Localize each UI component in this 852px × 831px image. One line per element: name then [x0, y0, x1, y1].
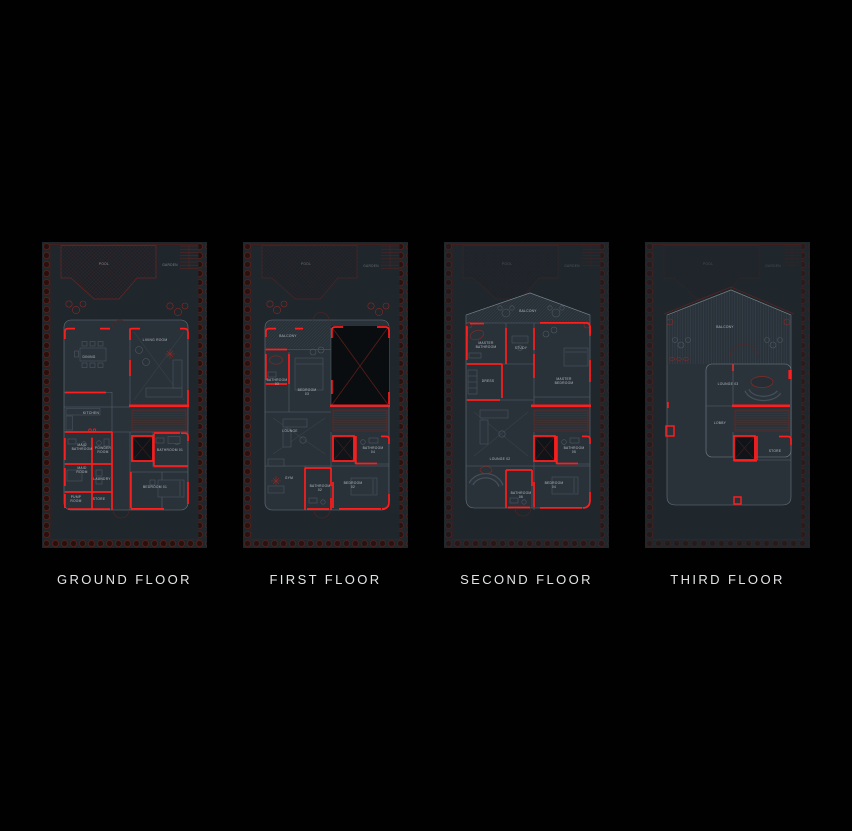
- room-label: GYM: [285, 476, 293, 480]
- stairs: [132, 410, 186, 431]
- floor-plan-ground: POOLGARDENDININGLIVING ROOMKITCHENMAIDBA…: [42, 242, 207, 548]
- room-label: BALCONY: [716, 325, 734, 329]
- room-label: GARDEN: [363, 264, 379, 268]
- room-label: LOBBY: [714, 421, 727, 425]
- room-label: GARDEN: [162, 263, 178, 267]
- stairs: [534, 410, 588, 431]
- room-label: DINING: [82, 355, 95, 359]
- room-label: MAIDROOM: [76, 466, 87, 474]
- room-label: STUDY: [515, 346, 528, 350]
- room-label: KITCHEN: [83, 411, 100, 415]
- room-label: GARDEN: [564, 264, 580, 268]
- hedge-left: [43, 242, 51, 548]
- ground-floor-drawing: POOLGARDENDININGLIVING ROOMKITCHENMAIDBA…: [42, 242, 207, 548]
- room-label: LOUNGE 02: [490, 457, 511, 461]
- room-label: GARDEN: [765, 264, 781, 268]
- floor-plan-first: POOLGARDENBALCONYBATHROOM03BEDROOM03LOUN…: [243, 242, 408, 548]
- room-label: POOL: [99, 262, 109, 266]
- second-floor-drawing: POOLGARDENBALCONYMASTERBATHROOMSTUDYMAST…: [444, 242, 609, 548]
- caption-third-floor: THIRD FLOOR: [645, 572, 810, 587]
- room-label: POOL: [703, 262, 713, 266]
- floor-plan-second: POOLGARDENBALCONYMASTERBATHROOMSTUDYMAST…: [444, 242, 609, 548]
- elevator: [333, 436, 354, 461]
- room-label: PUMPROOM: [70, 495, 81, 503]
- room-label: LIVING ROOM: [143, 338, 168, 342]
- stairs: [333, 410, 387, 431]
- room-label: MASTERBEDROOM: [555, 377, 574, 385]
- elevator: [132, 436, 153, 461]
- room-label: LOUNGE 03: [718, 382, 739, 386]
- room-label: BALCONY: [279, 334, 297, 338]
- room-label: BATHROOM 01: [157, 448, 183, 452]
- room-label: LAUNDRY: [93, 477, 111, 481]
- elevator: [534, 436, 555, 461]
- room-label: BEDROOM 01: [143, 485, 167, 489]
- room-label: LOUNGE: [282, 429, 298, 433]
- double-height-void: [330, 326, 390, 406]
- floor-plan-third: POOLGARDENBALCONYLOUNGE 03LOBBYSTORE THI…: [645, 242, 810, 548]
- third-floor-drawing: POOLGARDENBALCONYLOUNGE 03LOBBYSTORE: [645, 242, 810, 548]
- caption-first-floor: FIRST FLOOR: [243, 572, 408, 587]
- hedge-right: [199, 242, 207, 548]
- room-label: DRESS: [482, 379, 495, 383]
- room-label: STORE: [769, 449, 782, 453]
- room-label: BALCONY: [519, 309, 537, 313]
- stairs: [735, 410, 789, 431]
- room-label: MASTERBATHROOM: [476, 341, 497, 349]
- room-label: STORE: [93, 497, 106, 501]
- hedge-bottom: [50, 540, 199, 549]
- first-floor-drawing: POOLGARDENBALCONYBATHROOM03BEDROOM03LOUN…: [243, 242, 408, 548]
- caption-second-floor: SECOND FLOOR: [444, 572, 609, 587]
- caption-ground-floor: GROUND FLOOR: [42, 572, 207, 587]
- balcony: [266, 321, 331, 348]
- room-label: POOL: [301, 262, 311, 266]
- room-label: POOL: [502, 262, 512, 266]
- elevator: [734, 436, 755, 460]
- floor-plan-sheet: { "palette": { "background": "#010101", …: [0, 0, 852, 831]
